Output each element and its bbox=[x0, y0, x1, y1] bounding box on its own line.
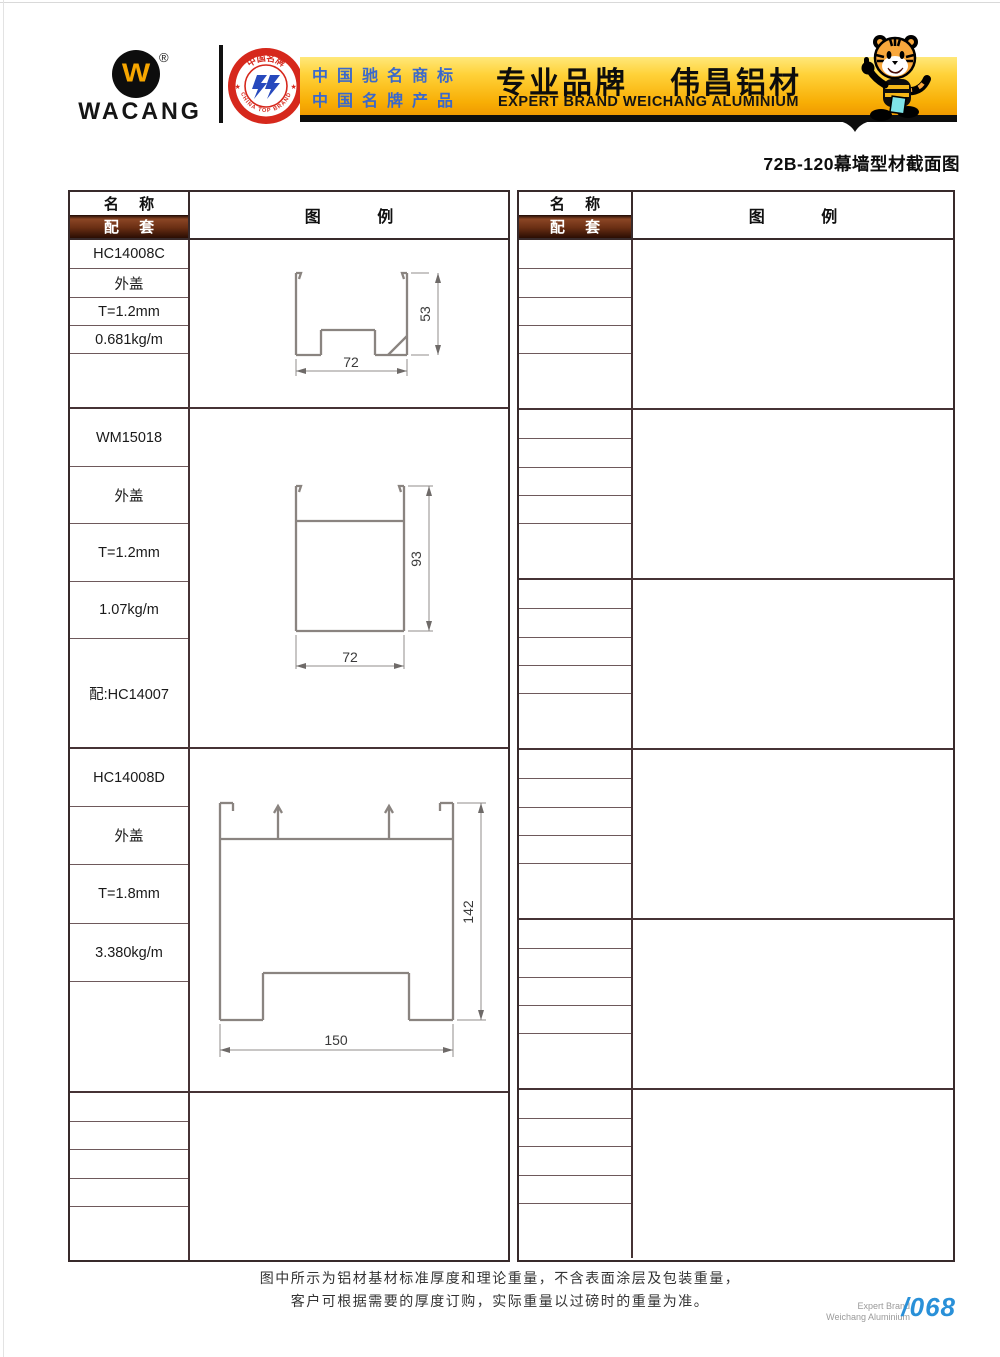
profile-type-cell: 外盖 bbox=[70, 807, 188, 865]
registered-trademark-icon: ® bbox=[159, 50, 169, 65]
thickness-cell: T=1.2mm bbox=[70, 298, 188, 326]
empty-profile-block bbox=[519, 580, 953, 750]
banner-claims: 中国驰名商标 中国名牌产品 bbox=[312, 64, 462, 114]
profile-type-cell bbox=[519, 269, 631, 298]
weight-cell bbox=[519, 496, 631, 524]
page-brand-line-2: Weichang Aluminium bbox=[826, 1312, 910, 1323]
profile-type-cell: 外盖 bbox=[70, 467, 188, 524]
profile-name-cell: WM15018 bbox=[70, 409, 188, 467]
empty-profile-block bbox=[70, 1093, 508, 1260]
wacang-logo: W bbox=[112, 50, 160, 98]
legend-cell bbox=[633, 920, 953, 1088]
empty-profile-block bbox=[519, 920, 953, 1090]
match-cell bbox=[519, 1034, 631, 1088]
dim-label-height: 53 bbox=[417, 306, 433, 322]
banner-title-en: EXPERT BRAND WEICHANG ALUMINIUM bbox=[498, 94, 799, 110]
profile-block-wm15018: WM15018 外盖 T=1.2mm 1.07kg/m 配:HC14007 72 bbox=[70, 409, 508, 749]
page-left-edge bbox=[3, 0, 4, 1357]
thickness-cell: T=1.2mm bbox=[70, 524, 188, 582]
left-table-header: 名 称 配 套 图 例 bbox=[70, 192, 508, 240]
profile-name-cell bbox=[519, 580, 631, 609]
match-cell: 配:HC14007 bbox=[70, 639, 188, 747]
profile-drawing-wm15018: 72 93 bbox=[190, 409, 508, 747]
claim-line-1: 中国驰名商标 bbox=[312, 64, 462, 89]
weight-cell bbox=[519, 326, 631, 354]
dim-label-height: 142 bbox=[460, 900, 476, 924]
dim-label-width: 150 bbox=[324, 1032, 348, 1048]
empty-profile-block bbox=[519, 410, 953, 580]
profile-name-cell bbox=[519, 410, 631, 439]
match-header-cell: 配 套 bbox=[519, 215, 631, 238]
thickness-cell bbox=[519, 808, 631, 836]
footer-note-line-1: 图中所示为铝材基材标准厚度和理论重量，不含表面涂层及包装重量， bbox=[0, 1268, 1000, 1288]
profile-name-cell bbox=[519, 240, 631, 269]
profile-name-cell: HC14008C bbox=[70, 240, 188, 269]
profile-name-cell bbox=[519, 920, 631, 949]
thickness-cell bbox=[519, 978, 631, 1006]
badge-star-right: ★ bbox=[291, 83, 297, 91]
profile-type-cell bbox=[519, 1119, 631, 1147]
profile-type-cell bbox=[519, 779, 631, 808]
profile-name-cell bbox=[519, 1090, 631, 1119]
thickness-cell bbox=[519, 1147, 631, 1176]
profile-block-hc14008c: HC14008C 外盖 T=1.2mm 0.681kg/m bbox=[70, 240, 508, 409]
legend-cell: 72 93 bbox=[190, 409, 508, 747]
profile-block-hc14008d: HC14008D 外盖 T=1.8mm 3.380kg/m bbox=[70, 749, 508, 1093]
thickness-cell bbox=[519, 468, 631, 496]
left-profile-table: 名 称 配 套 图 例 HC14008C 外盖 T=1.2mm 0.681kg/… bbox=[68, 190, 510, 1262]
page-brand-line-1: Expert Brand bbox=[826, 1301, 910, 1312]
match-header-cell: 配 套 bbox=[70, 215, 188, 238]
profile-type-cell bbox=[519, 609, 631, 638]
weight-cell bbox=[519, 1006, 631, 1034]
match-cell bbox=[519, 864, 631, 918]
legend-cell: 72 53 bbox=[190, 240, 508, 407]
legend-cell bbox=[190, 1093, 508, 1260]
page-number: /068 bbox=[901, 1292, 956, 1323]
weight-cell: 3.380kg/m bbox=[70, 924, 188, 982]
badge-star-left: ★ bbox=[235, 83, 241, 91]
legend-cell bbox=[633, 750, 953, 918]
thickness-cell: T=1.8mm bbox=[70, 865, 188, 924]
right-table-header: 名 称 配 套 图 例 bbox=[519, 192, 953, 240]
empty-profile-block bbox=[519, 750, 953, 920]
legend-header-cell: 图 例 bbox=[633, 192, 953, 238]
legend-cell bbox=[633, 240, 953, 408]
name-header-cell: 名 称 bbox=[519, 192, 631, 215]
claim-line-2: 中国名牌产品 bbox=[312, 89, 462, 114]
match-cell bbox=[70, 354, 188, 407]
thickness-cell bbox=[70, 1150, 188, 1179]
match-cell bbox=[70, 982, 188, 1091]
match-cell bbox=[519, 694, 631, 748]
legend-cell bbox=[633, 410, 953, 578]
weight-cell: 1.07kg/m bbox=[70, 582, 188, 639]
thickness-cell bbox=[519, 298, 631, 326]
profile-drawing-hc14008c: 72 53 bbox=[190, 240, 508, 405]
legend-header-cell: 图 例 bbox=[190, 192, 508, 238]
right-profile-table: 名 称 配 套 图 例 bbox=[517, 190, 955, 1262]
match-cell bbox=[70, 1207, 188, 1260]
legend-cell bbox=[633, 580, 953, 748]
profile-type-cell: 外盖 bbox=[70, 269, 188, 298]
brand-wordmark: WACANG bbox=[68, 98, 212, 126]
weight-cell bbox=[519, 836, 631, 864]
profile-type-cell bbox=[519, 949, 631, 978]
page-brand: Expert Brand Weichang Aluminium bbox=[826, 1301, 910, 1323]
legend-cell bbox=[633, 1090, 953, 1258]
tiger-mascot-icon bbox=[843, 27, 939, 123]
page-top-edge bbox=[0, 2, 1000, 3]
w-mark-icon: W bbox=[122, 61, 150, 87]
section-title: 72B-120幕墙型材截面图 bbox=[763, 151, 960, 176]
match-cell bbox=[519, 524, 631, 578]
thickness-cell bbox=[519, 638, 631, 666]
dim-label-width: 72 bbox=[342, 649, 358, 665]
profile-type-cell bbox=[70, 1122, 188, 1150]
profile-drawing-hc14008d: 150 142 bbox=[190, 749, 508, 1091]
profile-type-cell bbox=[519, 439, 631, 468]
weight-cell: 0.681kg/m bbox=[70, 326, 188, 354]
match-cell bbox=[519, 1204, 631, 1258]
legend-cell: 150 142 bbox=[190, 749, 508, 1091]
header-divider bbox=[219, 45, 223, 123]
weight-cell bbox=[519, 666, 631, 694]
name-header-cell: 名 称 bbox=[70, 192, 188, 215]
weight-cell bbox=[519, 1176, 631, 1204]
match-cell bbox=[519, 354, 631, 408]
profile-name-cell bbox=[519, 750, 631, 779]
profile-name-cell bbox=[70, 1093, 188, 1122]
empty-profile-block bbox=[519, 240, 953, 410]
weight-cell bbox=[70, 1179, 188, 1207]
dim-label-height: 93 bbox=[408, 551, 424, 567]
dim-label-width: 72 bbox=[343, 354, 359, 370]
empty-profile-block bbox=[519, 1090, 953, 1258]
china-top-brand-badge-icon: 中国名牌 CHINA TOP BRAND ★ ★ bbox=[226, 46, 306, 126]
profile-name-cell: HC14008D bbox=[70, 749, 188, 807]
